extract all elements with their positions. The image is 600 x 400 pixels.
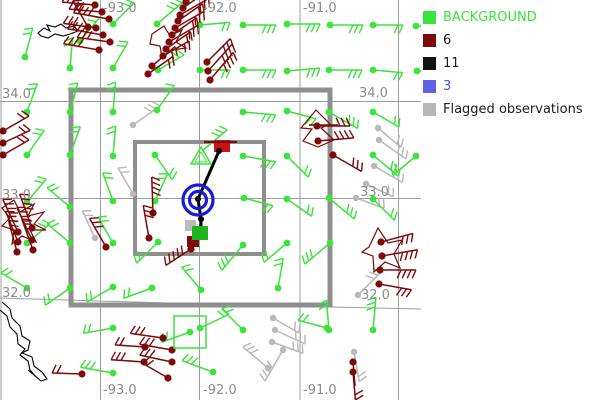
coastline [0,310,36,377]
station-dot[interactable] [240,67,247,74]
legend-swatch-11 [423,57,436,70]
green-marker-square[interactable] [192,226,208,240]
station-dot[interactable] [370,152,377,159]
legend-label-11: 11 [443,56,460,71]
station-barb[interactable] [370,22,403,34]
station-dot[interactable] [413,23,420,30]
station-barb[interactable] [327,22,363,34]
station-dot[interactable] [78,370,85,377]
station-barb[interactable] [222,306,247,334]
grid-label: 33.0 [360,185,389,200]
station-dot[interactable] [413,153,420,160]
station-dot[interactable] [314,137,321,144]
station-barb[interactable] [107,126,117,159]
station-dot[interactable] [349,358,356,365]
station-barb[interactable] [77,30,113,46]
station-dot[interactable] [280,347,286,353]
station-dot[interactable] [152,152,159,159]
legend: BACKGROUND 6 11 3 Flagged observations [423,6,583,121]
station-barb[interactable] [240,153,276,170]
station-dot[interactable] [240,327,247,334]
station-barb[interactable] [82,211,98,241]
grid-label: -92.0 [203,383,237,398]
station-dot[interactable] [67,204,74,211]
station-dot[interactable] [67,65,74,72]
legend-item-6: 6 [423,29,583,52]
station-dot[interactable] [240,109,247,116]
station-dot[interactable] [0,127,7,134]
station-barb[interactable] [81,360,117,377]
station-dot[interactable] [92,235,98,241]
legend-label-flagged: Flagged observations [443,102,583,117]
station-dot[interactable] [210,369,217,376]
station-dot[interactable] [284,240,291,247]
station-barb[interactable] [197,22,230,32]
grid-label: 33.0 [2,188,31,203]
grid-label: 34.0 [2,87,31,102]
black-ob-dot[interactable] [198,216,204,222]
station-dot[interactable] [110,325,117,332]
station-barb[interactable] [83,324,116,334]
station-barb[interactable] [314,130,353,145]
station-dot[interactable] [329,151,336,158]
station-dot[interactable] [197,67,204,74]
station-barb[interactable] [370,109,400,127]
grid-label: -92.0 [203,1,237,16]
station-dot[interactable] [99,31,106,38]
station-barb[interactable] [124,285,156,299]
obs-qc-map-window: -93.0-93.0-92.0-92.0-91.0-91.034.034.033… [0,0,600,400]
station-dot[interactable] [370,109,377,116]
station-dot[interactable] [275,285,282,292]
station-dot[interactable] [377,238,384,245]
station-dot[interactable] [376,266,383,273]
station-dot[interactable] [351,349,357,355]
legend-item-11: 11 [423,52,583,75]
legend-label-background: BACKGROUND [443,10,537,25]
station-barb[interactable] [203,39,233,66]
station-barb[interactable] [24,129,45,159]
station-dot[interactable] [29,246,36,253]
station-barb[interactable] [134,239,162,264]
station-barb[interactable] [149,177,160,217]
black-ob-dot[interactable] [216,148,222,154]
station-dot[interactable] [110,370,117,377]
station-dot[interactable] [203,58,210,65]
station-barb[interactable] [182,265,205,294]
station-dot[interactable] [102,243,109,250]
station-dot[interactable] [154,21,161,28]
station-dot[interactable] [378,252,385,259]
station-dot[interactable] [0,139,7,146]
station-barb[interactable] [110,41,128,71]
station-dot[interactable] [22,54,29,61]
station-dot[interactable] [110,109,117,116]
station-dot[interactable] [284,153,291,160]
station-dot[interactable] [241,195,248,202]
legend-item-3: 3 [423,75,583,98]
station-dot[interactable] [174,17,181,24]
legend-swatch-flagged [423,103,436,116]
station-barb[interactable] [240,22,276,34]
station-dot[interactable] [187,329,194,336]
station-dot[interactable] [326,67,333,74]
station-barb[interactable] [103,173,117,205]
black-ob-dot[interactable] [195,196,201,202]
station-barb[interactable] [162,329,194,343]
station-dot[interactable] [95,46,102,53]
station-dot[interactable] [327,240,334,247]
station-barb[interactable] [64,38,74,71]
station-barb[interactable] [22,28,33,60]
station-dot[interactable] [370,22,377,29]
station-dot[interactable] [0,151,7,158]
legend-swatch-background [423,11,436,24]
station-dot[interactable] [145,234,152,241]
station-dot[interactable] [326,195,333,202]
station-dot[interactable] [110,240,117,247]
grid-label: -93.0 [103,383,137,398]
station-barb[interactable] [284,153,312,178]
legend-label-3: 3 [443,79,451,94]
station-dot[interactable] [154,107,161,114]
station-dot[interactable] [149,209,156,216]
station-dot[interactable] [105,15,112,22]
station-dot[interactable] [240,242,247,249]
station-dot[interactable] [106,38,113,45]
station-barb[interactable] [370,67,403,81]
station-dot[interactable] [13,248,20,255]
triangle-ob-symbol[interactable] [191,147,211,164]
station-dot[interactable] [67,240,74,247]
station-dot[interactable] [272,327,278,333]
station-dot[interactable] [370,327,377,334]
station-dot[interactable] [198,287,205,294]
station-barb[interactable] [240,109,276,123]
coastline [2,302,47,381]
grid-label: 32.0 [2,286,31,301]
station-dot[interactable] [284,21,291,28]
station-barb[interactable] [274,258,284,291]
station-dot[interactable] [240,22,247,29]
station-barb[interactable] [378,250,417,261]
station-barb[interactable] [152,152,177,180]
station-barb[interactable] [375,125,404,147]
station-dot[interactable] [376,137,382,143]
coastline [38,24,78,38]
grid-label: 34.0 [359,86,388,101]
station-dot[interactable] [144,70,151,77]
station-dot[interactable] [149,285,156,292]
station-barb[interactable] [329,151,362,171]
rejected-cluster-outline [362,228,402,272]
station-barb[interactable] [284,68,320,78]
station-barb[interactable] [284,21,320,33]
station-dot[interactable] [179,4,186,11]
station-barb[interactable] [86,284,116,302]
station-barb[interactable] [298,313,330,331]
station-barb[interactable] [240,67,276,79]
station-dot[interactable] [265,365,271,371]
station-dot[interactable] [130,122,136,128]
grid-label: -91.0 [303,1,337,16]
station-dot[interactable] [313,122,320,129]
station-dot[interactable] [110,284,117,291]
station-dot[interactable] [24,152,31,159]
station-dot[interactable] [284,68,291,75]
station-dot[interactable] [326,327,333,334]
legend-item-flagged: Flagged observations [423,98,583,121]
legend-swatch-6 [423,34,436,47]
station-dot[interactable] [110,65,117,72]
station-dot[interactable] [370,67,377,74]
station-barb[interactable] [107,82,117,115]
grid-label: -91.0 [303,383,337,398]
station-barb[interactable] [349,368,363,400]
grid-label: -93.0 [103,1,137,16]
grid-label: 32.0 [361,288,390,303]
station-dot[interactable] [130,191,136,197]
legend-label-6: 6 [443,33,451,48]
station-dot[interactable] [353,195,359,201]
station-dot[interactable] [67,152,74,159]
station-dot[interactable] [414,68,421,75]
station-barb[interactable] [326,67,362,79]
station-dot[interactable] [164,374,171,381]
station-dot[interactable] [240,153,247,160]
station-dot[interactable] [371,163,377,169]
station-dot[interactable] [375,125,381,131]
station-dot[interactable] [327,22,334,29]
map-layer [0,0,447,400]
station-dot[interactable] [110,198,117,205]
station-dot[interactable] [375,280,382,287]
station-dot[interactable] [326,109,333,116]
station-barb[interactable] [376,266,416,278]
station-dot[interactable] [206,76,213,83]
station-dot[interactable] [159,334,166,341]
legend-swatch-3 [423,80,436,93]
station-dot[interactable] [155,239,162,246]
station-dot[interactable] [84,23,91,30]
station-barb[interactable] [241,195,273,213]
station-dot[interactable] [197,325,204,332]
station-dot[interactable] [110,153,117,160]
station-dot[interactable] [168,358,175,365]
station-dot[interactable] [269,339,275,345]
legend-item-background: BACKGROUND [423,6,583,29]
station-dot[interactable] [284,196,291,203]
station-dot[interactable] [92,24,99,31]
station-dot[interactable] [284,108,291,115]
station-barb[interactable] [130,102,160,129]
station-dot[interactable] [67,109,74,116]
station-dot[interactable] [270,315,276,321]
station-dot[interactable] [67,285,74,292]
station-barb[interactable] [243,343,271,371]
station-dot[interactable] [349,368,356,375]
station-dot[interactable] [204,67,211,74]
station-dot[interactable] [91,1,98,8]
